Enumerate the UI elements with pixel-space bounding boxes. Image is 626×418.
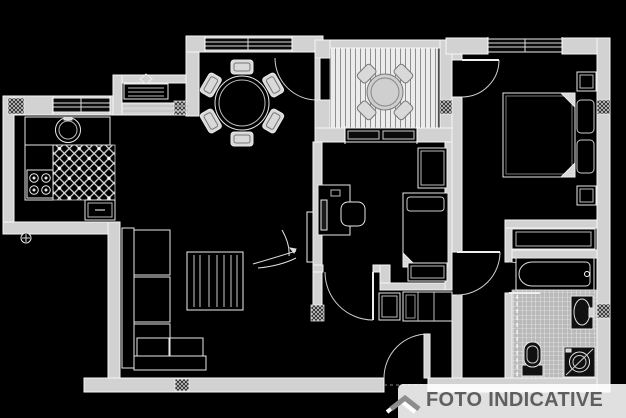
kitchen-tiled-floor: [53, 145, 115, 200]
built-in-closet: [512, 229, 595, 249]
hatch-block: [174, 101, 186, 115]
hatch-block: [597, 304, 610, 318]
single-bed: [403, 193, 448, 267]
nightstand: [577, 72, 596, 91]
bedroom-west-wall-c: [452, 295, 462, 378]
toilet: [522, 342, 543, 376]
tv-panel: [307, 212, 313, 262]
watermark: FOTO INDICATIVE: [384, 383, 626, 418]
hatch-block: [311, 305, 324, 321]
hallway-dresser: [403, 292, 452, 321]
bedroom2-top-wall-left: [315, 128, 345, 142]
washing-machine: [564, 347, 595, 377]
computer-monitor: [321, 200, 327, 230]
bedroom2-south-wall-a: [313, 265, 323, 272]
kitchen-window: [53, 96, 110, 114]
bedroom2-wardrobe: [418, 148, 447, 188]
bedroom-window: [488, 37, 562, 54]
hatch-block: [597, 100, 610, 114]
bathroom-west-wall-a: [505, 228, 512, 262]
desk-chair: [341, 202, 365, 226]
hallway: [379, 292, 452, 321]
living-left-lower-wall: [108, 222, 120, 392]
bedroom2-nightstand: [408, 263, 447, 281]
bedroom2-balcony-window: [345, 126, 417, 144]
washbasin: [571, 296, 594, 329]
bathroom-west-wall-b: [505, 293, 512, 378]
watermark-text: FOTO INDICATIVE: [426, 389, 603, 412]
roof-chevron-icon: [384, 393, 422, 415]
pillow: [407, 197, 444, 211]
bottom-wall-left: [84, 378, 384, 392]
pillow: [577, 100, 594, 133]
bedroom-top-wall-left: [446, 38, 488, 54]
gas-valve-icon: [21, 233, 31, 243]
bathroom-top-wall: [512, 250, 597, 258]
balcony-table: [367, 74, 403, 110]
kitchen-left-wall: [3, 96, 14, 234]
floor-plan-drawing: [0, 0, 626, 418]
nightstand: [577, 186, 596, 205]
balcony-left-parapet-upper: [315, 40, 330, 58]
floor-plan-screenshot: FOTO INDICATIVE: [0, 0, 626, 418]
hatch-block: [440, 100, 452, 114]
bedroom2-top-wall-right: [417, 128, 452, 142]
hatch-block: [175, 379, 189, 391]
shoe-cabinet: [379, 293, 400, 320]
bedroom-south-wall: [505, 220, 597, 228]
right-outer-wall: [597, 38, 610, 392]
bedroom-west-wall-b: [452, 97, 462, 252]
kitchen-bottom-wall: [3, 222, 115, 234]
kitchen-sink: [56, 117, 81, 143]
bathtub: [516, 258, 594, 290]
niche-stub-wall: [113, 75, 122, 115]
bedroom2-south-wall-d: [380, 283, 452, 290]
balcony-top-parapet: [315, 40, 452, 48]
dining-chair: [231, 132, 253, 146]
living-room-window: [205, 36, 292, 52]
tv-cabinet: [187, 252, 243, 310]
dining-chair: [231, 60, 253, 74]
kitchen-stove: [27, 170, 53, 198]
kitchen-cabinet: [85, 200, 115, 220]
pillow: [577, 140, 594, 173]
hatch-block: [8, 98, 24, 114]
